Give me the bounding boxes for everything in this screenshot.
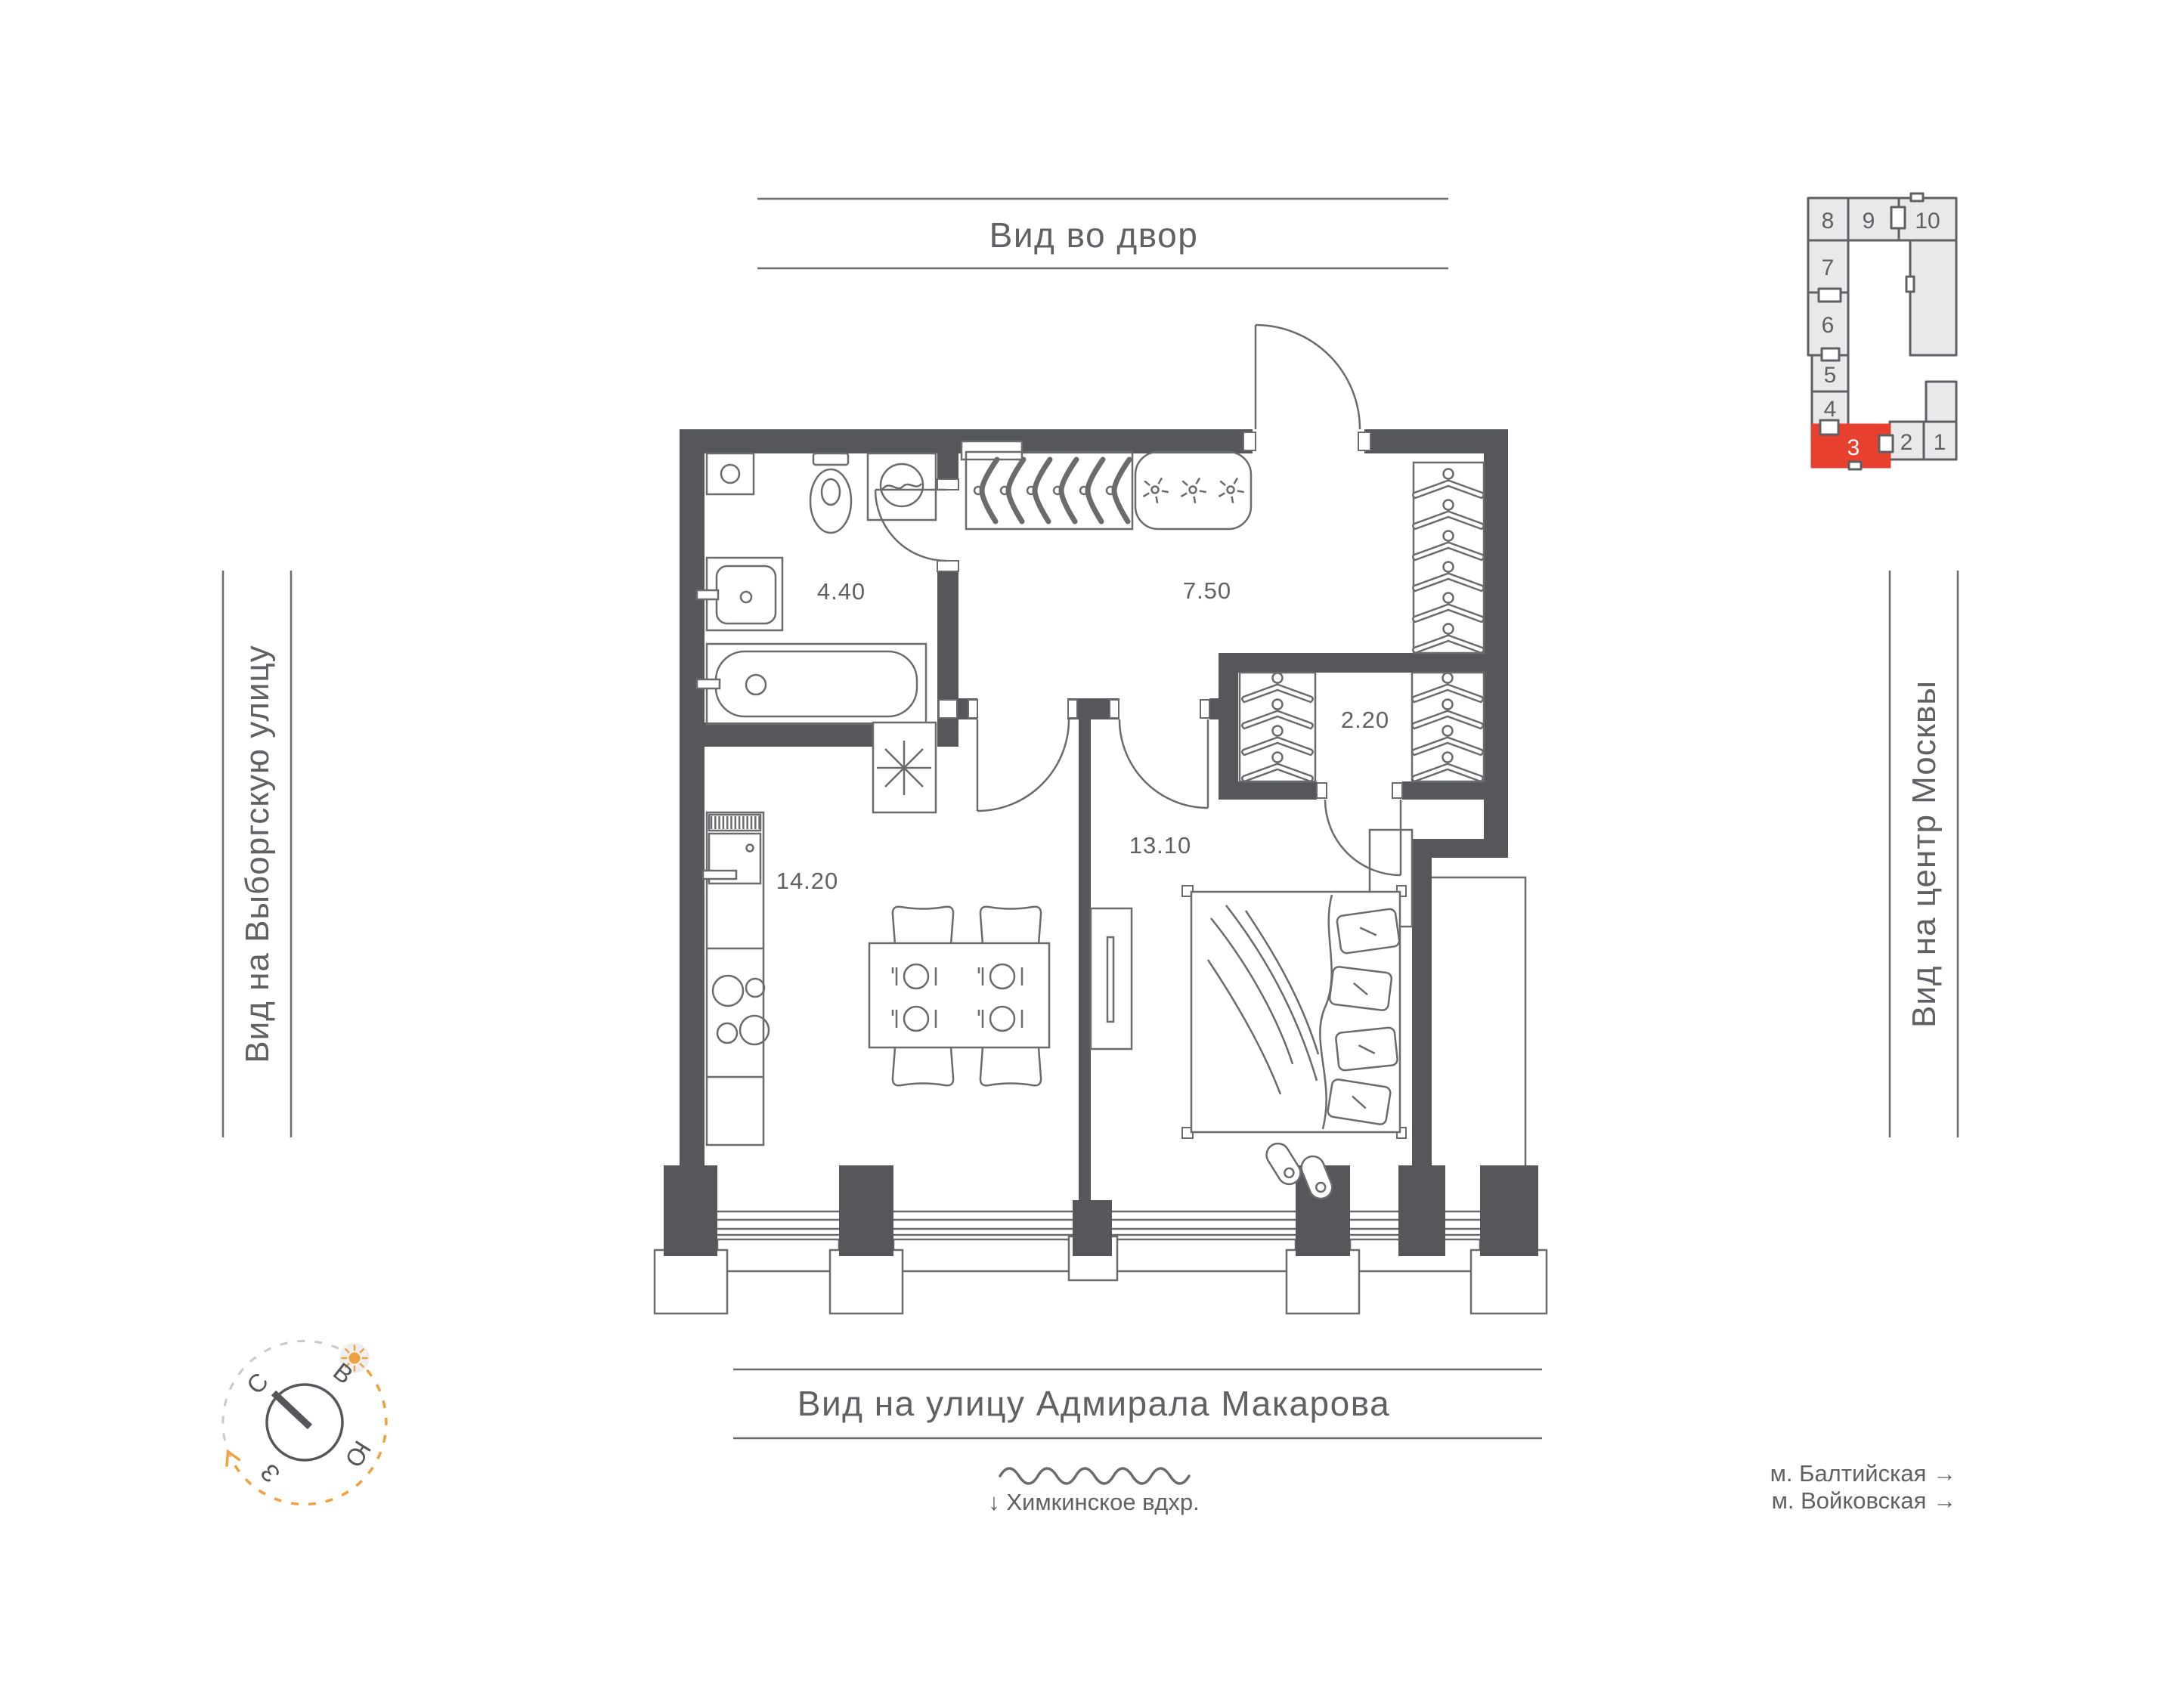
mini-building-plan: 8 9 10 7 6 5 4	[1808, 193, 1956, 469]
compass-north: С	[241, 1367, 274, 1399]
svg-text:6: 6	[1822, 313, 1835, 338]
vent-shaft-icon	[873, 722, 936, 812]
bedroom-door	[1119, 719, 1208, 808]
mini-plan-notch	[1906, 277, 1914, 292]
room-area-bathroom: 4.40	[817, 578, 866, 605]
water-wave-icon	[1000, 1468, 1189, 1484]
svg-text:10: 10	[1915, 209, 1940, 234]
mini-plan-notch	[1819, 289, 1841, 302]
compass: С В Ю З	[223, 1341, 386, 1504]
walls	[664, 429, 1538, 1256]
label-view-makarova: Вид на улицу Адмирала Макарова	[733, 1369, 1542, 1438]
closet-door	[1325, 800, 1401, 875]
mini-plan-unit-7[interactable]: 7	[1808, 240, 1848, 292]
kitchen-sink-icon	[703, 834, 760, 883]
mini-plan-notch	[1891, 207, 1905, 228]
stove-icon	[713, 976, 769, 1044]
neighbour-balcony-outline	[1432, 877, 1525, 1165]
mini-plan-unit-10[interactable]: 10	[1899, 198, 1956, 240]
bathroom-fixtures	[697, 453, 936, 812]
dining-table	[869, 943, 1049, 1047]
khimki-reservoir: ↓ Химкинское вдхр.	[988, 1468, 1199, 1515]
room-area-closet: 2.20	[1341, 707, 1389, 733]
svg-text:5: 5	[1824, 363, 1837, 388]
svg-text:9: 9	[1863, 209, 1875, 234]
sink-icon	[697, 558, 782, 630]
label-view-moscow-center: Вид на центр Москвы	[1890, 571, 1958, 1137]
mini-plan-unit-8[interactable]: 8	[1808, 198, 1848, 240]
room-area-kitchen: 14.20	[776, 868, 839, 894]
compass-south: Ю	[339, 1436, 376, 1472]
svg-text:8: 8	[1822, 209, 1835, 234]
shoe-rack-items	[974, 459, 1129, 521]
bedroom-furniture	[1182, 830, 1412, 1202]
boiler-icon	[707, 453, 754, 494]
apartment-plan: 4.40 7.50 2.20 14.20 13.10	[655, 325, 1547, 1313]
view-right-label: Вид на центр Москвы	[1906, 680, 1943, 1028]
room-area-bedroom: 13.10	[1129, 832, 1192, 859]
ceiling-light-lamps	[1143, 478, 1243, 503]
entrance-door	[1256, 325, 1360, 429]
compass-west: З	[255, 1459, 286, 1488]
view-top-label: Вид во двор	[989, 215, 1199, 255]
svg-text:7: 7	[1822, 255, 1835, 280]
toilet-icon	[810, 453, 851, 533]
bed-icon	[1182, 886, 1406, 1138]
view-bottom-label: Вид на улицу Адмирала Макарова	[797, 1384, 1390, 1423]
water-label: ↓ Химкинское вдхр.	[988, 1489, 1199, 1515]
sun-path-arrow	[227, 1452, 239, 1465]
floorplan-page: Вид во двор Вид на Выборгскую улицу Вид …	[0, 0, 2177, 1708]
mini-plan-unit-1[interactable]: 1	[1924, 422, 1956, 459]
metro-baltiyskaya-label: м. Балтийская →	[1770, 1460, 1956, 1487]
svg-text:2: 2	[1900, 430, 1913, 455]
mini-plan-notch	[1911, 193, 1923, 201]
svg-text:1: 1	[1934, 430, 1946, 455]
mini-plan-unit-2[interactable]: 2	[1890, 422, 1924, 459]
wall-niche	[962, 441, 1022, 459]
hallway-furniture	[966, 452, 1484, 653]
tv-console-icon	[1091, 908, 1132, 1049]
closet-left-hangers	[1242, 673, 1313, 782]
svg-text:3: 3	[1847, 435, 1860, 460]
mini-plan-wing	[1910, 240, 1956, 422]
closet-right-hangers	[1412, 673, 1483, 782]
view-left-label: Вид на Выборгскую улицу	[239, 645, 276, 1063]
metro-voykovskaya-label: м. Войковская →	[1772, 1487, 1956, 1514]
svg-text:4: 4	[1824, 397, 1837, 422]
bathtub-icon	[697, 644, 926, 724]
hall-wardrobe-hangers	[1413, 469, 1484, 654]
mini-plan-unit-3-highlighted[interactable]: 3	[1812, 420, 1893, 469]
room-area-hallway: 7.50	[1183, 577, 1231, 604]
drying-rack-slats	[711, 816, 760, 829]
metro-directions: м. Балтийская → м. Войковская →	[1770, 1460, 1956, 1514]
label-view-vyborgskaya: Вид на Выборгскую улицу	[223, 571, 291, 1137]
kitchen-door	[977, 719, 1069, 811]
mini-plan-notch	[1822, 348, 1839, 360]
label-view-courtyard: Вид во двор	[757, 199, 1448, 268]
kitchen-furniture	[703, 812, 1132, 1145]
